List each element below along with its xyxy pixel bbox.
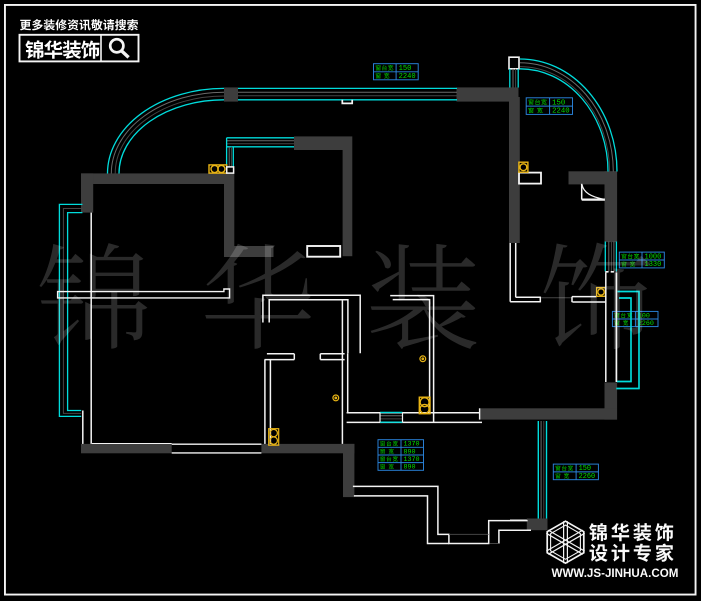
svg-text:150: 150 [579, 465, 591, 473]
svg-text:2240: 2240 [552, 108, 570, 116]
svg-text:WWW.JS-JINHUA.COM: WWW.JS-JINHUA.COM [552, 567, 679, 580]
svg-text:2240: 2240 [399, 73, 416, 81]
svg-text:1000: 1000 [645, 253, 662, 261]
svg-text:150: 150 [552, 99, 565, 107]
svg-text:890: 890 [404, 464, 416, 472]
svg-text:150: 150 [399, 65, 412, 73]
svg-text:2260: 2260 [579, 473, 596, 481]
